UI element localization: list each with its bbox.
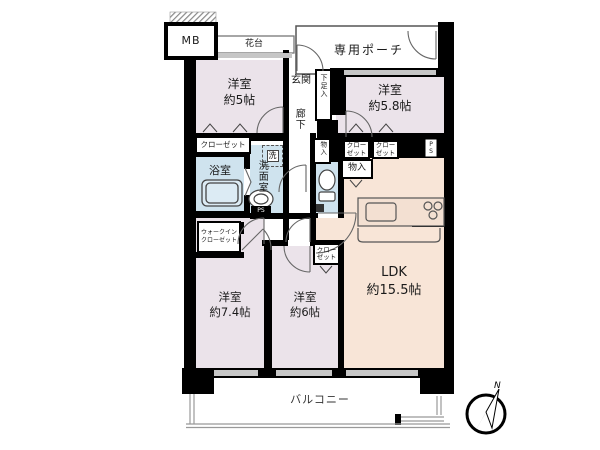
ps-label: PS <box>251 206 271 216</box>
closet6-label: クロー ゼット <box>314 244 339 264</box>
closet58b-label: クロー ゼット <box>373 141 398 158</box>
hanadai-label: 花台 <box>214 36 294 53</box>
closet5-label: クローゼット <box>196 137 250 153</box>
storage-vertical-label: 物入 <box>314 139 330 165</box>
mb-label: MB <box>166 24 216 58</box>
walkin-closet-label: ウォークイン クローゼット <box>198 222 240 252</box>
balcony-label: バルコニー <box>240 392 400 408</box>
room5-label: 洋室 約5帖 <box>196 74 283 110</box>
genkan-label: 玄関 <box>286 74 316 88</box>
closet58a-label: クロー ゼット <box>344 141 369 158</box>
room74-label: 洋室 約7.4帖 <box>196 288 264 322</box>
ldk-label: LDK 約15.5帖 <box>344 262 444 302</box>
room58-label: 洋室 約5.8帖 <box>336 80 444 116</box>
corridor-label: 廊下 <box>289 106 307 148</box>
bath-label: 浴室 <box>196 163 244 179</box>
storage-ldk-label: 物入 <box>342 160 372 178</box>
shoe-cabinet-label: 下足入 <box>317 72 331 120</box>
porch-label: 専用ポーチ <box>296 26 442 74</box>
ps-shaft-label: P S <box>425 139 437 157</box>
compass-icon: N <box>467 381 505 437</box>
room6-label: 洋室 約6帖 <box>272 288 338 322</box>
bathtub-icon <box>202 180 242 206</box>
floorplan: N MB 花台 専用ポーチ 洋室 約5帖 玄関 下足入 洋室 約5.8帖 廊下 … <box>0 0 600 450</box>
compass-north-label: N <box>494 381 501 391</box>
